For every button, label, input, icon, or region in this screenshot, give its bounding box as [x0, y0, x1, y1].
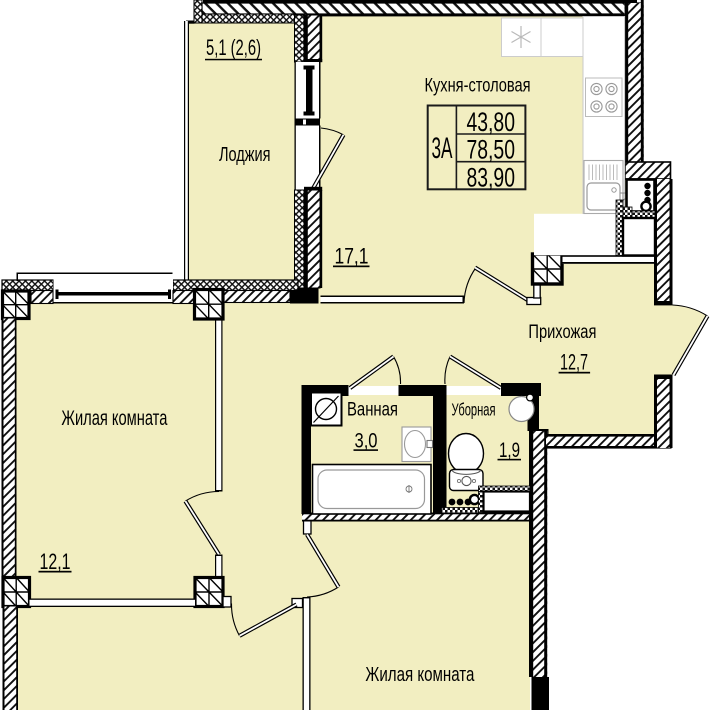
svg-text:17,1: 17,1	[335, 244, 369, 269]
svg-text:Жилая комната: Жилая комната	[365, 664, 475, 686]
svg-text:Прихожая: Прихожая	[528, 322, 596, 343]
svg-text:Лоджия: Лоджия	[219, 144, 271, 166]
svg-text:83,90: 83,90	[467, 162, 516, 192]
svg-text:Уборная: Уборная	[452, 399, 496, 419]
svg-text:Кухня-столовая: Кухня-столовая	[425, 75, 531, 97]
svg-text:3А: 3А	[432, 132, 453, 165]
svg-text:78,50: 78,50	[467, 135, 516, 165]
svg-text:3,0: 3,0	[355, 430, 378, 453]
svg-text:12,7: 12,7	[560, 350, 588, 375]
svg-text:43,80: 43,80	[467, 107, 516, 137]
svg-text:5,1 (2,6): 5,1 (2,6)	[206, 35, 261, 60]
svg-text:Ванная: Ванная	[347, 399, 398, 420]
svg-text:Жилая комната: Жилая комната	[61, 407, 167, 430]
svg-text:1,9: 1,9	[499, 439, 520, 462]
svg-text:12,1: 12,1	[40, 549, 71, 574]
